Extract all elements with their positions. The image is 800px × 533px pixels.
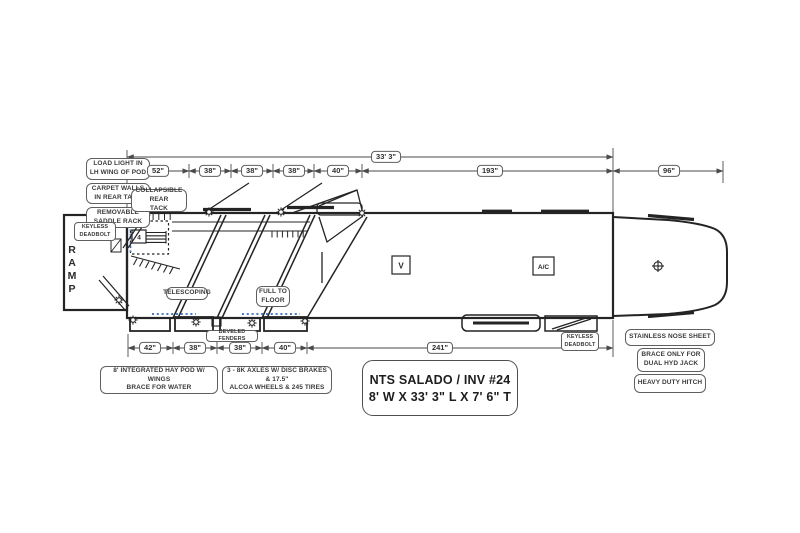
callout-heavy-duty-hitch: HEAVY DUTY HITCH — [634, 374, 706, 393]
callout-text: DEADBOLT — [565, 342, 596, 349]
trailer-floorplan-drawing: V A/C 4 R A M P 33' 3" 52" 38" 38" 38" 4… — [0, 0, 800, 533]
dim-overall-length: 33' 3" — [371, 151, 401, 163]
dim-bottom-241: 241" — [427, 342, 453, 354]
callout-full-to-floor: FULL TO FLOOR — [256, 286, 290, 307]
callout-text: DEADBOLT — [80, 232, 111, 239]
callout-text: COLLAPSIBLE REAR — [134, 187, 184, 205]
callout-text: DUAL HYD JACK — [644, 360, 698, 369]
dim-top-40: 40" — [327, 165, 349, 177]
saddle-rack-bars — [146, 231, 166, 244]
callout-text: FULL TO — [259, 288, 287, 297]
drawing-canvas: V A/C 4 R A M P — [0, 0, 800, 533]
manger-lines — [172, 222, 310, 238]
dim-bottom-40: 40" — [274, 342, 296, 354]
callout-text: KEYLESS — [567, 334, 593, 341]
ramp-letter: R — [68, 244, 76, 256]
callout-brace-only: BRACE ONLY FOR DUAL HYD JACK — [637, 348, 705, 372]
vent-label: V — [398, 262, 404, 271]
callout-text: ALCOA WHEELS & 245 TIRES — [230, 384, 325, 393]
light-icon — [247, 318, 256, 327]
dim-top-38c: 38" — [283, 165, 305, 177]
interior-labels — [392, 256, 554, 275]
title-line2: 8' W X 33' 3" L X 7' 6" T — [369, 390, 511, 404]
light-icon — [276, 207, 285, 216]
ramp-letter: A — [68, 257, 76, 269]
callout-text: LH WING OF POD — [90, 169, 146, 178]
title-line1: NTS SALADO / INV #24 — [370, 373, 511, 387]
hay-pod-assembly — [292, 190, 363, 283]
callout-text: HEAVY DUTY HITCH — [638, 379, 702, 388]
ac-label: A/C — [538, 264, 550, 271]
callout-axles: 3 - 8K AXLES W/ DISC BRAKES & 17.5" ALCO… — [222, 366, 332, 394]
callout-beveled-fenders: BEVELED FENDERS — [206, 330, 258, 342]
open-gates — [203, 183, 334, 212]
callout-text: KEYLESS — [82, 224, 108, 231]
hitch-icon — [652, 260, 664, 272]
dim-top-52: 52" — [147, 165, 169, 177]
title-block: NTS SALADO / INV #24 8' W X 33' 3" L X 7… — [362, 360, 518, 416]
callout-text: FLOOR — [261, 297, 284, 306]
ramp-letter: P — [68, 283, 75, 295]
callout-collapsible-rear-tack: COLLAPSIBLE REAR TACK — [131, 189, 187, 212]
light-icon — [114, 295, 123, 304]
dim-top-38b: 38" — [241, 165, 263, 177]
gooseneck-nose-outline — [613, 217, 727, 316]
callout-telescoping: TELESCOPING — [166, 287, 208, 300]
callout-text: TELESCOPING — [163, 289, 211, 298]
callout-text: TACK — [150, 205, 168, 214]
callout-load-light: LOAD LIGHT IN LH WING OF POD — [86, 158, 150, 180]
callout-text: 3 - 8K AXLES W/ DISC BRAKES & 17.5" — [225, 367, 329, 385]
callout-text: BRACE ONLY FOR — [641, 351, 700, 360]
callout-stainless-nose-sheet: STAINLESS NOSE SHEET — [625, 329, 715, 346]
dim-bottom-38a: 38" — [184, 342, 206, 354]
dim-bottom-38b: 38" — [229, 342, 251, 354]
dim-top-38a: 38" — [199, 165, 221, 177]
saddle-rack-count: 4 — [137, 235, 141, 242]
callout-text: STAINLESS NOSE SHEET — [629, 333, 711, 342]
callout-text: LOAD LIGHT IN — [93, 160, 142, 169]
callout-hay-pod: 8' INTEGRATED HAY POD W/ WINGS BRACE FOR… — [100, 366, 218, 394]
ramp-letter: M — [68, 270, 77, 282]
dim-top-193: 193" — [477, 165, 503, 177]
callout-keyless-deadbolt-front: KEYLESS DEADBOLT — [561, 332, 599, 351]
collapsible-wall-hatch — [131, 256, 180, 274]
callout-text: BRACE FOR WATER — [127, 384, 192, 393]
callout-text: 8' INTEGRATED HAY POD W/ WINGS — [103, 367, 215, 385]
dim-bottom-42: 42" — [139, 342, 161, 354]
callout-keyless-deadbolt-rear: KEYLESS DEADBOLT — [74, 222, 116, 241]
dim-nose-96: 96" — [658, 165, 680, 177]
light-icon — [357, 208, 366, 217]
